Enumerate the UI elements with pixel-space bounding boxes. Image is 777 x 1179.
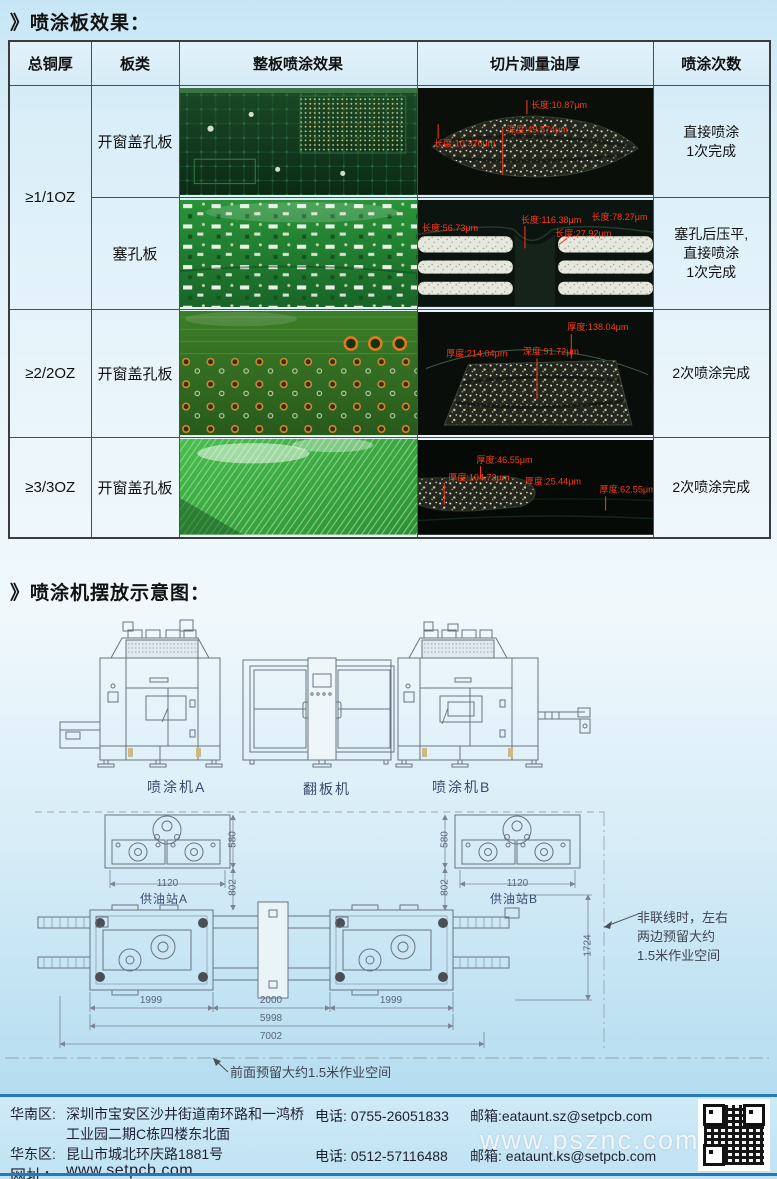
oil-station-a-drawing (105, 815, 230, 868)
qr-code (700, 1101, 768, 1169)
machine-b-label: 喷涂机B (432, 777, 491, 797)
dim-line-length: 5998 (248, 1013, 294, 1024)
dim-station-a-depth: 580 (228, 820, 239, 860)
pcb-image-3 (180, 311, 417, 435)
qr-finder-top-right (743, 1104, 765, 1126)
phone-south: 电话: 0755-26051833 (315, 1106, 449, 1126)
footer-divider-line (0, 1173, 777, 1176)
micro4-ann-2: 厚度:104.73μm (448, 471, 509, 482)
machine-elevation-drawing (0, 612, 777, 777)
result-cell-3: 2次喷涂完成 (653, 310, 770, 438)
micro4-ann-3: 厚度:25.44μm (524, 475, 580, 486)
dim-station-a-gap: 802 (228, 868, 239, 908)
copper-cell-1: ≥1/1OZ (9, 86, 91, 310)
board-cell-3: 开窗盖孔板 (91, 310, 179, 438)
dim-depth: 1724 (583, 926, 594, 966)
result-cell-2: 塞孔后压平, 直接喷涂 1次完成 (653, 198, 770, 310)
board-cell-1: 开窗盖孔板 (91, 86, 179, 198)
table-header-row: 总铜厚 板类 整板喷涂效果 切片测量油厚 喷涂次数 (9, 41, 770, 86)
col-header-slice: 切片测量油厚 (417, 41, 653, 86)
oil-station-b-label: 供油站B (490, 890, 538, 907)
south-region-label: 华南区: (10, 1104, 56, 1124)
col-header-whole-board: 整板喷涂效果 (179, 41, 417, 86)
slice-photo-row1: 长度:10.87μm 深度:49.574μm 长度:10.376μm (417, 86, 653, 198)
pcb-photo-row4 (179, 438, 417, 538)
east-region-label: 华东区: (10, 1144, 56, 1164)
dim-machine-a-length: 1999 (128, 995, 174, 1006)
flipper-plan (258, 902, 288, 998)
flipper-machine-drawing (243, 658, 394, 767)
south-address-line1: 深圳市宝安区沙井街道南环路和一鸿桥 (66, 1104, 304, 1124)
pcb-photo-row3 (179, 310, 417, 438)
pcb-photo-row2 (179, 198, 417, 310)
copper-cell-4: ≥3/3OZ (9, 438, 91, 538)
micro2-ann-1: 长度:116.38μm (520, 214, 580, 225)
micro3-ann-3: 深度:91.72μm (522, 345, 578, 356)
micro-image-4: 厚度:46.55μm 厚度:104.73μm 厚度:25.44μm 厚度:62.… (418, 440, 653, 535)
machine-a-plan (90, 905, 213, 995)
board-cell-2: 塞孔板 (91, 198, 179, 310)
micro-image-1: 长度:10.87μm 深度:49.574μm 长度:10.376μm (418, 88, 653, 195)
dim-total-length: 7002 (248, 1031, 294, 1042)
micro2-ann-2: 长度:78.27μm (591, 211, 647, 222)
col-header-times: 喷涂次数 (653, 41, 770, 86)
slice-photo-row4: 厚度:46.55μm 厚度:104.73μm 厚度:25.44μm 厚度:62.… (417, 438, 653, 538)
table-row: 塞孔板 (9, 198, 770, 310)
section2-title: 》喷涂机摆放示意图： (10, 578, 210, 605)
dim-flipper-length: 2000 (248, 995, 294, 1006)
pcb-photo-row1 (179, 86, 417, 198)
micro-image-2: 长度:116.38μm 长度:78.27μm 长度:56.73μm 长度:27.… (418, 200, 653, 307)
slice-photo-row2: 长度:116.38μm 长度:78.27μm 长度:56.73μm 长度:27.… (417, 198, 653, 310)
micro-image-3: 厚度:138.04μm 厚度:214.04μm 深度:91.72μm (418, 312, 653, 435)
watermark-text: www.psznc.com (480, 1125, 700, 1156)
dim-machine-b-length: 1999 (368, 995, 414, 1006)
micro3-ann-2: 厚度:214.04μm (446, 347, 507, 358)
micro2-ann-3: 长度:56.73μm (422, 222, 478, 233)
micro1-ann-3: 长度:10.376μm (434, 138, 495, 149)
oil-station-b-drawing (455, 815, 580, 868)
brochure-page: 》喷涂板效果： 总铜厚 板类 整板喷涂效果 切片测量油厚 喷涂次数 ≥1/1OZ… (0, 0, 777, 1179)
front-clearance-note: 前面预留大约1.5米作业空间 (230, 1063, 391, 1082)
coating-effects-table: 总铜厚 板类 整板喷涂效果 切片测量油厚 喷涂次数 ≥1/1OZ 开窗盖孔板 (8, 40, 771, 539)
dim-station-b-gap: 802 (440, 868, 451, 908)
col-header-copper: 总铜厚 (9, 41, 91, 86)
flipper-label: 翻板机 (303, 779, 351, 799)
email-south: 邮箱:eataunt.sz@setpcb.com (470, 1106, 652, 1126)
qr-finder-top-left (703, 1104, 725, 1126)
section1-title: 》喷涂板效果： (10, 8, 150, 35)
micro1-ann-2: 深度:49.574μm (506, 123, 567, 134)
website-label: 网址： (10, 1162, 60, 1179)
oil-station-a-label: 供油站A (140, 890, 188, 907)
micro4-ann-1: 厚度:46.55μm (476, 454, 532, 465)
machine-b-plan (330, 905, 453, 995)
table-row: ≥1/1OZ 开窗盖孔板 (9, 86, 770, 198)
micro3-ann-1: 厚度:138.04μm (567, 321, 628, 332)
south-address-line2: 工业园二期C栋四楼东北面 (66, 1124, 230, 1144)
east-address: 昆山市城北环庆路1881号 (66, 1144, 223, 1164)
machine-feet (396, 760, 542, 767)
dim-station-a-width: 1120 (145, 878, 190, 889)
slice-photo-row3: 厚度:138.04μm 厚度:214.04μm 深度:91.72μm (417, 310, 653, 438)
micro2-ann-4: 长度:27.92μm (555, 227, 611, 238)
table-row: ≥2/2OZ 开窗盖孔板 (9, 310, 770, 438)
micro1-ann-1: 长度:10.87μm (530, 99, 586, 110)
pcb-image-1 (180, 88, 417, 196)
machine-a-label: 喷涂机A (147, 777, 206, 797)
result-cell-1: 直接喷涂 1次完成 (653, 86, 770, 198)
result-cell-4: 2次喷涂完成 (653, 438, 770, 538)
table-row: ≥3/3OZ 开窗盖孔板 (9, 438, 770, 538)
phone-east: 电话: 0512-57116488 (315, 1146, 448, 1166)
pcb-image-2 (180, 200, 417, 308)
copper-cell-3: ≥2/2OZ (9, 310, 91, 438)
dim-station-b-width: 1120 (495, 878, 540, 889)
spray-machine-a-drawing (60, 620, 222, 767)
machine-feet (98, 760, 222, 767)
spray-machine-b-drawing (396, 622, 590, 767)
micro4-ann-4: 厚度:62.55μm (599, 483, 652, 494)
pcb-image-4 (180, 439, 417, 535)
side-clearance-note: 非联线时，左右 两边预留大约 1.5米作业空间 (637, 908, 772, 965)
website-url: www.setpcb.com (66, 1162, 193, 1179)
dim-station-b-depth: 580 (440, 820, 451, 860)
col-header-board-type: 板类 (91, 41, 179, 86)
qr-finder-bottom-left (703, 1144, 725, 1166)
board-cell-4: 开窗盖孔板 (91, 438, 179, 538)
